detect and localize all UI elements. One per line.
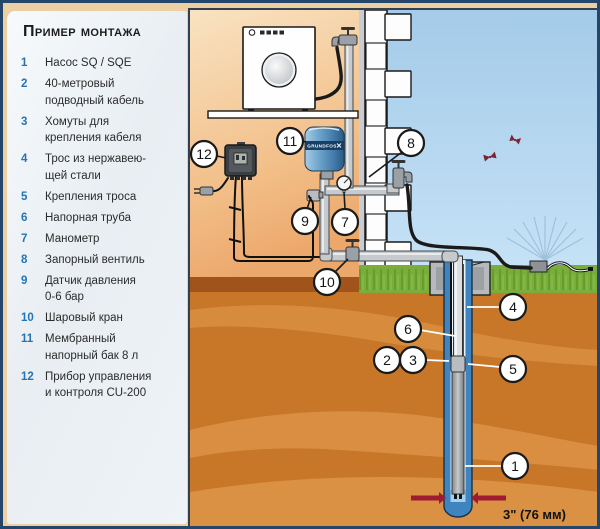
- legend-item: 2 40-метровый подводный кабель: [21, 76, 179, 109]
- legend-item-label: Трос из нержавею- щей стали: [45, 151, 179, 184]
- diagram-svg: 3" (76 мм): [190, 10, 599, 526]
- legend-item-number: 11: [21, 331, 45, 364]
- tank-brand-label: GRUNDFOS: [307, 144, 337, 149]
- callout-5: 5: [500, 356, 526, 382]
- washing-machine: [243, 27, 315, 112]
- shelf: [208, 111, 358, 118]
- legend-item-label: 40-метровый подводный кабель: [45, 76, 179, 109]
- callout-1: 1: [502, 453, 528, 479]
- control-unit: [225, 142, 256, 180]
- legend-item-number: 2: [21, 76, 45, 109]
- svg-text:10: 10: [319, 274, 335, 290]
- legend-item: 8 Запорный вентиль: [21, 252, 179, 269]
- pump: [452, 372, 464, 499]
- legend-item: 4 Трос из нержавею- щей стали: [21, 151, 179, 184]
- callout-8: 8: [398, 130, 424, 156]
- diagram-canvas: 3" (76 мм): [190, 10, 599, 526]
- svg-text:2: 2: [383, 352, 391, 368]
- callout-12: 12: [191, 141, 217, 167]
- legend-item: 6 Напорная труба: [21, 210, 179, 227]
- callout-9: 9: [292, 208, 318, 234]
- legend-item-label: Мембранный напорный бак 8 л: [45, 331, 179, 364]
- svg-text:8: 8: [407, 135, 415, 151]
- legend-item: 10 Шаровый кран: [21, 310, 179, 327]
- legend-item-number: 12: [21, 369, 45, 402]
- callout-6: 6: [395, 316, 421, 342]
- legend-item-number: 7: [21, 231, 45, 248]
- legend-item-label: Запорный вентиль: [45, 252, 179, 269]
- callout-3: 3: [400, 347, 426, 373]
- legend-item-label: Датчик давления 0-6 бар: [45, 273, 179, 306]
- svg-text:7: 7: [341, 214, 349, 230]
- svg-text:4: 4: [509, 299, 517, 315]
- pressure-tank: GRUNDFOS: [305, 127, 344, 179]
- legend-item-number: 5: [21, 189, 45, 206]
- drop-pipe: [454, 256, 463, 358]
- svg-text:6: 6: [404, 321, 412, 337]
- svg-text:9: 9: [301, 213, 309, 229]
- callout-11: 11: [277, 128, 303, 154]
- legend-item-label: Шаровый кран: [45, 310, 179, 327]
- legend-item-number: 9: [21, 273, 45, 306]
- svg-text:12: 12: [196, 146, 212, 162]
- legend-item: 11 Мембранный напорный бак 8 л: [21, 331, 179, 364]
- legend-item-number: 6: [21, 210, 45, 227]
- legend-panel: Пример монтажа 1 Насос SQ / SQE 2 40-мет…: [7, 11, 187, 524]
- legend-item-label: Насос SQ / SQE: [45, 55, 179, 72]
- svg-text:3: 3: [409, 352, 417, 368]
- legend-item-label: Хомуты для крепления кабеля: [45, 114, 179, 147]
- callout-10: 10: [314, 269, 340, 295]
- callout-2: 2: [374, 347, 400, 373]
- legend-item: 3 Хомуты для крепления кабеля: [21, 114, 179, 147]
- pipe-coupling: [451, 356, 465, 372]
- legend-item-number: 4: [21, 151, 45, 184]
- legend-item-label: Крепления троса: [45, 189, 179, 206]
- installation-diagram-page: Пример монтажа 1 Насос SQ / SQE 2 40-мет…: [0, 0, 600, 529]
- legend-item: 9 Датчик давления 0-6 бар: [21, 273, 179, 306]
- callout-4: 4: [500, 294, 526, 320]
- legend-item-number: 10: [21, 310, 45, 327]
- legend-item: 1 Насос SQ / SQE: [21, 55, 179, 72]
- legend-item-number: 3: [21, 114, 45, 147]
- legend-item: 12 Прибор управления и контроля CU-200: [21, 369, 179, 402]
- well-diameter-label: 3" (76 мм): [503, 507, 566, 522]
- svg-text:11: 11: [283, 133, 298, 149]
- legend-item-number: 1: [21, 55, 45, 72]
- well-supply-pipe: [325, 251, 448, 261]
- legend-item-label: Манометр: [45, 231, 179, 248]
- page-title: Пример монтажа: [23, 23, 179, 41]
- legend-item: 5 Крепления троса: [21, 189, 179, 206]
- legend-item: 7 Манометр: [21, 231, 179, 248]
- callout-7: 7: [332, 209, 358, 235]
- legend-item-number: 8: [21, 252, 45, 269]
- legend-item-label: Напорная труба: [45, 210, 179, 227]
- soil: [190, 277, 599, 526]
- legend-item-label: Прибор управления и контроля CU-200: [45, 369, 179, 402]
- svg-text:5: 5: [509, 361, 517, 377]
- svg-text:1: 1: [511, 458, 519, 474]
